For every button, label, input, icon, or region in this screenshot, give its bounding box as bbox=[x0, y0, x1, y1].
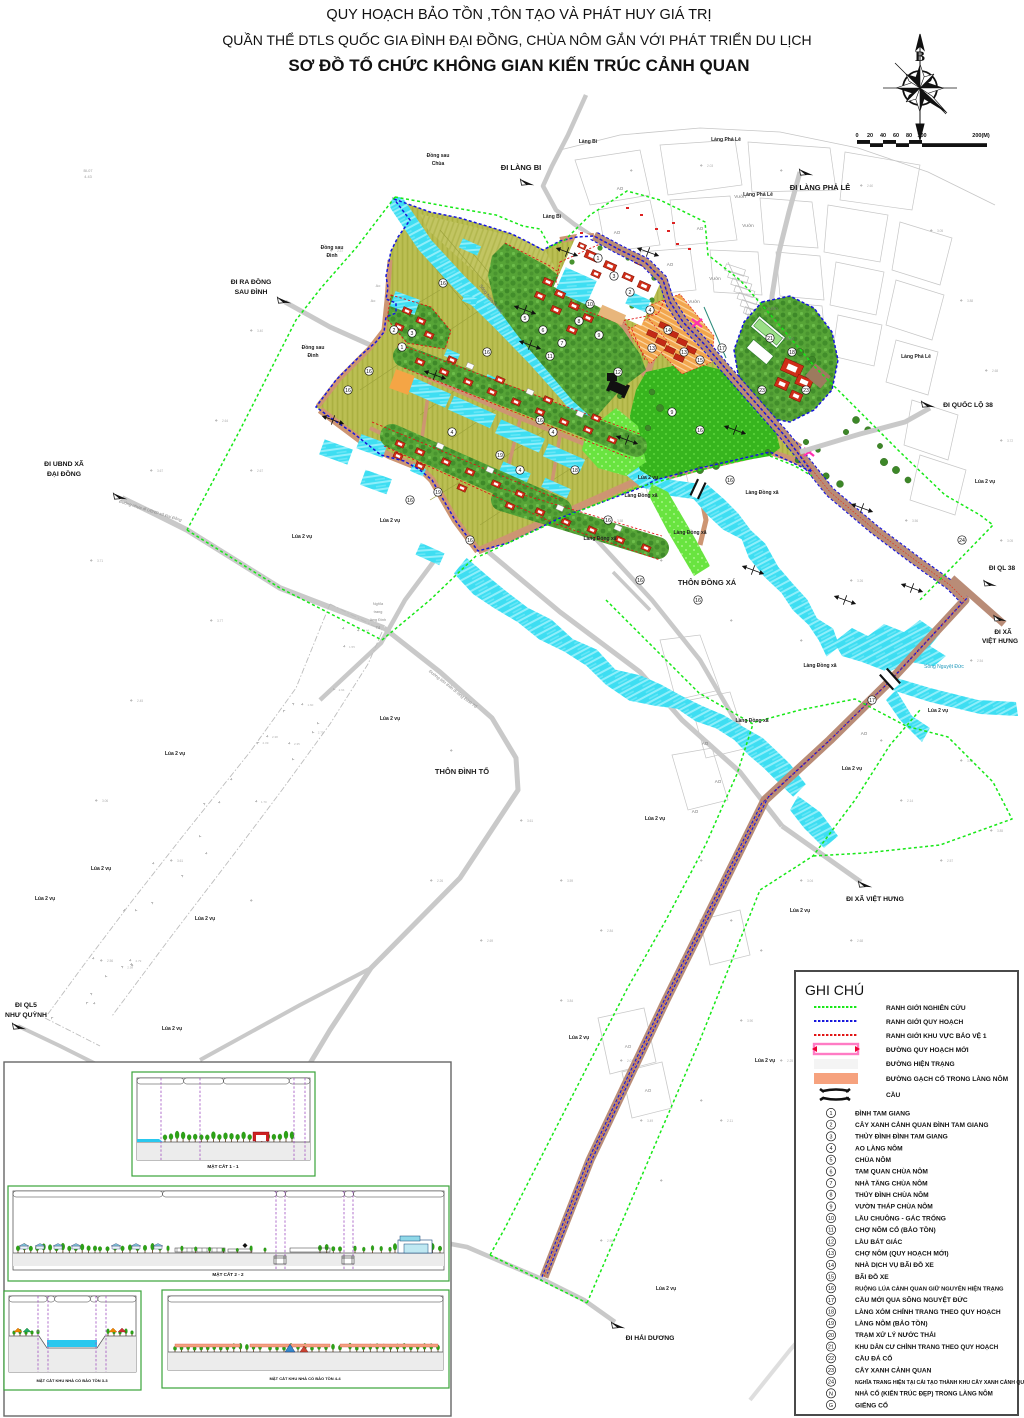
svg-text:0: 0 bbox=[855, 133, 858, 139]
svg-text:BÃI ĐỖ XE: BÃI ĐỖ XE bbox=[855, 1272, 889, 1281]
svg-text:16: 16 bbox=[697, 428, 703, 434]
svg-text:5: 5 bbox=[830, 1158, 833, 1164]
svg-text:1.60: 1.60 bbox=[307, 703, 313, 707]
svg-text:3: 3 bbox=[830, 1134, 833, 1140]
svg-text:Làng Đồng xã: Làng Đồng xã bbox=[673, 530, 706, 536]
svg-text:KHU DÂN CƯ CHỈNH TRANG THEO QU: KHU DÂN CƯ CHỈNH TRANG THEO QUY HOẠCH bbox=[855, 1344, 999, 1351]
svg-text:THỦY ĐÌNH ĐÌNH TAM GIANG: THỦY ĐÌNH ĐÌNH TAM GIANG bbox=[855, 1132, 948, 1141]
svg-text:2.56: 2.56 bbox=[107, 959, 113, 963]
svg-text:15: 15 bbox=[697, 358, 703, 364]
svg-text:Vườn: Vườn bbox=[688, 299, 700, 304]
svg-text:TRẠM XỬ LÝ NƯỚC THẢI: TRẠM XỬ LÝ NƯỚC THẢI bbox=[855, 1330, 936, 1339]
svg-text:2.58: 2.58 bbox=[127, 965, 133, 969]
svg-text:ĐI XÃ VIỆT HƯNG: ĐI XÃ VIỆT HƯNG bbox=[846, 894, 904, 903]
svg-text:2.45: 2.45 bbox=[137, 699, 143, 703]
svg-text:2.68: 2.68 bbox=[857, 939, 863, 943]
svg-text:4: 4 bbox=[830, 1146, 833, 1152]
svg-text:B: B bbox=[915, 49, 925, 65]
svg-text:16: 16 bbox=[828, 1286, 834, 1292]
svg-text:TAM QUAN CHÙA NÔM: TAM QUAN CHÙA NÔM bbox=[855, 1167, 928, 1176]
svg-text:ĐI QL 38: ĐI QL 38 bbox=[989, 565, 1016, 572]
svg-text:Làng Đồng xã: Làng Đồng xã bbox=[624, 493, 657, 499]
svg-text:2.39: 2.39 bbox=[263, 741, 269, 745]
svg-text:16: 16 bbox=[366, 369, 372, 375]
svg-text:Vườn: Vườn bbox=[734, 194, 746, 199]
svg-text:2.67: 2.67 bbox=[257, 469, 263, 473]
svg-text:NHÀ DỊCH VỤ BÃI ĐỖ XE: NHÀ DỊCH VỤ BÃI ĐỖ XE bbox=[855, 1260, 934, 1269]
svg-text:23: 23 bbox=[759, 388, 765, 394]
svg-text:trang: trang bbox=[374, 610, 383, 614]
svg-text:12: 12 bbox=[828, 1239, 834, 1245]
svg-text:2.14: 2.14 bbox=[907, 799, 913, 803]
svg-text:Lúa 2 vụ: Lúa 2 vụ bbox=[292, 534, 312, 540]
svg-text:2.38: 2.38 bbox=[272, 735, 278, 739]
svg-text:14: 14 bbox=[665, 328, 671, 334]
svg-text:Tổ: Tổ bbox=[376, 626, 380, 630]
svg-text:2.26: 2.26 bbox=[437, 879, 443, 883]
svg-text:2.79: 2.79 bbox=[135, 959, 141, 963]
svg-text:AO: AO bbox=[614, 230, 621, 235]
svg-text:NHÀ CỔ (KIẾN TRÚC ĐẸP) TRONG L: NHÀ CỔ (KIẾN TRÚC ĐẸP) TRONG LÀNG NÔM bbox=[855, 1390, 993, 1398]
svg-text:16: 16 bbox=[440, 281, 446, 287]
svg-text:LÀNG XÓM CHỈNH TRANG THEO QUY: LÀNG XÓM CHỈNH TRANG THEO QUY HOẠCH bbox=[855, 1307, 1001, 1316]
svg-text:VƯỜN THÁP CHÙA NÔM: VƯỜN THÁP CHÙA NÔM bbox=[855, 1202, 933, 1211]
svg-text:RANH GIỚI QUY HOẠCH: RANH GIỚI QUY HOẠCH bbox=[886, 1017, 964, 1026]
svg-text:3.06: 3.06 bbox=[102, 799, 108, 803]
svg-text:10: 10 bbox=[828, 1216, 834, 1222]
svg-text:3.85: 3.85 bbox=[997, 829, 1003, 833]
svg-text:20: 20 bbox=[867, 133, 873, 139]
svg-text:19: 19 bbox=[435, 490, 441, 496]
svg-text:7: 7 bbox=[830, 1181, 833, 1187]
svg-text:2: 2 bbox=[629, 290, 632, 296]
svg-text:22: 22 bbox=[828, 1356, 834, 1362]
svg-text:3.58: 3.58 bbox=[617, 519, 623, 523]
svg-text:2.68: 2.68 bbox=[992, 369, 998, 373]
svg-text:3: 3 bbox=[411, 331, 414, 337]
svg-text:AO: AO bbox=[625, 1044, 632, 1049]
svg-text:8: 8 bbox=[578, 319, 581, 325]
svg-text:1: 1 bbox=[830, 1111, 833, 1117]
svg-text:60: 60 bbox=[893, 133, 899, 139]
svg-text:16: 16 bbox=[605, 518, 611, 524]
svg-text:Vườn: Vườn bbox=[742, 223, 754, 228]
svg-text:ĐƯỜNG QUY HOẠCH MỚI: ĐƯỜNG QUY HOẠCH MỚI bbox=[886, 1045, 969, 1054]
svg-text:RUỘNG LÚA CẢNH QUAN GIỮ NGUYÊN: RUỘNG LÚA CẢNH QUAN GIỮ NGUYÊN HIỆN TRẠN… bbox=[855, 1285, 1004, 1293]
svg-text:ĐI LÀNG BI: ĐI LÀNG BI bbox=[501, 163, 541, 172]
svg-text:4: 4 bbox=[552, 430, 555, 436]
svg-text:CHỢ NÔM (QUY HOẠCH MỚI): CHỢ NÔM (QUY HOẠCH MỚI) bbox=[855, 1248, 949, 1257]
svg-text:Vườn: Vườn bbox=[782, 336, 794, 341]
svg-text:17: 17 bbox=[719, 346, 725, 352]
svg-text:2.84: 2.84 bbox=[607, 929, 613, 933]
svg-text:21: 21 bbox=[828, 1345, 834, 1351]
svg-text:3.84: 3.84 bbox=[567, 999, 573, 1003]
svg-text:ĐI UBND XÃ: ĐI UBND XÃ bbox=[44, 459, 84, 468]
svg-text:8: 8 bbox=[830, 1193, 833, 1199]
svg-text:1.55: 1.55 bbox=[349, 645, 355, 649]
svg-text:RANH GIỚI KHU VỰC BẢO VỆ 1: RANH GIỚI KHU VỰC BẢO VỆ 1 bbox=[886, 1031, 987, 1040]
svg-text:N: N bbox=[829, 1391, 833, 1397]
svg-text:Làng Bi: Làng Bi bbox=[543, 214, 562, 220]
svg-text:THỦY ĐÌNH CHÙA NÔM: THỦY ĐÌNH CHÙA NÔM bbox=[855, 1190, 929, 1199]
svg-text:ĐƯỜNG GẠCH CỔ TRONG LÀNG NÔM: ĐƯỜNG GẠCH CỔ TRONG LÀNG NÔM bbox=[886, 1074, 1009, 1083]
svg-text:MẶT CẮT KHU NHÀ CỔ BẢO TỒN 3-3: MẶT CẮT KHU NHÀ CỔ BẢO TỒN 3-3 bbox=[36, 1378, 108, 1383]
svg-text:MẶT CẮT KHU NHÀ CỔ BẢO TỒN 4-: MẶT CẮT KHU NHÀ CỔ BẢO TỒN 4-4 bbox=[269, 1376, 341, 1381]
svg-text:Đồng sau: Đồng sau bbox=[302, 345, 325, 351]
svg-text:16: 16 bbox=[727, 478, 733, 484]
svg-text:Lúa 2 vụ: Lúa 2 vụ bbox=[380, 716, 400, 722]
svg-text:Lúa 2 vụ: Lúa 2 vụ bbox=[755, 1058, 775, 1064]
svg-text:AO: AO bbox=[702, 741, 709, 746]
svg-text:5: 5 bbox=[524, 316, 527, 322]
svg-text:VIỆT HƯNG: VIỆT HƯNG bbox=[982, 636, 1018, 645]
svg-text:16: 16 bbox=[637, 578, 643, 584]
svg-text:Chùa: Chùa bbox=[432, 161, 445, 167]
svg-text:2: 2 bbox=[830, 1123, 833, 1129]
svg-text:16: 16 bbox=[537, 418, 543, 424]
svg-text:6: 6 bbox=[542, 328, 545, 334]
svg-text:15: 15 bbox=[828, 1274, 834, 1280]
svg-text:3.26: 3.26 bbox=[857, 579, 863, 583]
svg-text:7: 7 bbox=[561, 341, 564, 347]
svg-text:AO: AO bbox=[861, 731, 868, 736]
svg-text:2.35: 2.35 bbox=[294, 742, 300, 746]
svg-text:1: 1 bbox=[401, 345, 404, 351]
svg-text:Làng Đồng xã: Làng Đồng xã bbox=[803, 663, 836, 669]
svg-text:ĐI LÀNG PHẢ LÊ: ĐI LÀNG PHẢ LÊ bbox=[790, 183, 850, 192]
svg-text:BI-07: BI-07 bbox=[83, 169, 92, 173]
svg-text:17: 17 bbox=[869, 698, 875, 704]
svg-text:Lúa 2 vụ: Lúa 2 vụ bbox=[165, 751, 185, 757]
svg-text:3.49: 3.49 bbox=[647, 1119, 653, 1123]
svg-text:NHƯ QUỲNH: NHƯ QUỲNH bbox=[5, 1010, 47, 1019]
svg-text:MẶT CẮT 2 - 2: MẶT CẮT 2 - 2 bbox=[212, 1270, 244, 1277]
svg-text:9: 9 bbox=[830, 1204, 833, 1210]
svg-text:Lúa 2 vụ: Lúa 2 vụ bbox=[380, 518, 400, 524]
svg-text:Lúa 2 vụ: Lúa 2 vụ bbox=[656, 1286, 676, 1292]
svg-text:10: 10 bbox=[587, 302, 593, 308]
svg-text:THÔN ĐỒNG XÁ: THÔN ĐỒNG XÁ bbox=[678, 577, 737, 587]
svg-text:1.70: 1.70 bbox=[261, 800, 267, 804]
svg-text:Lúa 2 vụ: Lúa 2 vụ bbox=[569, 1035, 589, 1041]
svg-text:NGHĨA TRANG HIỆN TẠI CẢI TẠO T: NGHĨA TRANG HIỆN TẠI CẢI TẠO THÀNH KHU C… bbox=[855, 1378, 1024, 1386]
svg-text:3.88: 3.88 bbox=[967, 299, 973, 303]
svg-text:3.61: 3.61 bbox=[527, 819, 533, 823]
svg-text:ĐƯỜNG HIỆN TRẠNG: ĐƯỜNG HIỆN TRẠNG bbox=[886, 1059, 955, 1068]
svg-text:Vườn: Vườn bbox=[766, 306, 778, 311]
svg-text:2.54: 2.54 bbox=[977, 659, 983, 663]
svg-text:16: 16 bbox=[407, 498, 413, 504]
svg-text:13: 13 bbox=[828, 1251, 834, 1257]
svg-text:làng Đình: làng Đình bbox=[370, 618, 386, 622]
svg-text:16: 16 bbox=[695, 598, 701, 604]
svg-text:AO: AO bbox=[692, 809, 699, 814]
svg-text:Làng Phả Lê: Làng Phả Lê bbox=[711, 137, 741, 143]
svg-text:23: 23 bbox=[803, 388, 809, 394]
svg-text:16: 16 bbox=[484, 350, 490, 356]
svg-text:2.57: 2.57 bbox=[947, 859, 953, 863]
svg-text:2.03: 2.03 bbox=[707, 164, 713, 168]
svg-text:CHÙA NÔM: CHÙA NÔM bbox=[855, 1155, 892, 1164]
svg-text:40: 40 bbox=[880, 133, 886, 139]
svg-text:Làng Phả Lê: Làng Phả Lê bbox=[901, 354, 931, 360]
svg-text:Lúa 2 vụ: Lúa 2 vụ bbox=[162, 1026, 182, 1032]
svg-text:11: 11 bbox=[828, 1228, 834, 1234]
svg-text:18: 18 bbox=[789, 350, 795, 356]
svg-text:AO: AO bbox=[667, 262, 674, 267]
svg-text:SƠ ĐỒ TỔ CHỨC KHÔNG GIAN KIẾN: SƠ ĐỒ TỔ CHỨC KHÔNG GIAN KIẾN TRÚC CẢNH … bbox=[288, 56, 749, 75]
svg-text:14: 14 bbox=[828, 1263, 834, 1269]
svg-text:13: 13 bbox=[649, 346, 655, 352]
svg-text:13: 13 bbox=[681, 350, 687, 356]
svg-text:200(M): 200(M) bbox=[972, 133, 990, 139]
svg-text:AO: AO bbox=[715, 779, 722, 784]
svg-text:ĐI HẢI DƯƠNG: ĐI HẢI DƯƠNG bbox=[626, 1333, 675, 1342]
svg-text:3.59: 3.59 bbox=[567, 879, 573, 883]
svg-text:4.43: 4.43 bbox=[84, 175, 91, 179]
svg-text:16: 16 bbox=[467, 538, 473, 544]
svg-text:16: 16 bbox=[345, 388, 351, 394]
svg-text:100: 100 bbox=[917, 133, 926, 139]
svg-text:CÂY XANH CẢNH QUAN: CÂY XANH CẢNH QUAN bbox=[855, 1365, 932, 1374]
svg-text:24: 24 bbox=[828, 1380, 834, 1386]
svg-text:Lúa 2 vụ: Lúa 2 vụ bbox=[645, 816, 665, 822]
svg-text:ĐI QL5: ĐI QL5 bbox=[15, 1002, 37, 1009]
svg-text:QUY HOẠCH BẢO TỒN ,TÔN TẠO VÀ: QUY HOẠCH BẢO TỒN ,TÔN TẠO VÀ PHÁT HUY G… bbox=[326, 5, 711, 23]
svg-text:ĐÌNH TAM GIANG: ĐÌNH TAM GIANG bbox=[855, 1108, 910, 1117]
svg-text:AO: AO bbox=[697, 226, 704, 231]
svg-text:RANH GIỚI NGHIÊN CỨU: RANH GIỚI NGHIÊN CỨU bbox=[886, 1003, 966, 1012]
svg-text:Lúa 2 vụ: Lúa 2 vụ bbox=[842, 766, 862, 772]
svg-text:Làng Đồng xã: Làng Đồng xã bbox=[745, 490, 778, 496]
svg-text:Nghĩa: Nghĩa bbox=[373, 602, 384, 606]
svg-text:6: 6 bbox=[830, 1169, 833, 1175]
svg-text:NHÀ TĂNG CHÙA NÔM: NHÀ TĂNG CHÙA NÔM bbox=[855, 1178, 928, 1187]
svg-text:Làng Đồng xã: Làng Đồng xã bbox=[735, 718, 768, 724]
svg-text:G: G bbox=[829, 1403, 833, 1409]
svg-text:AO: AO bbox=[645, 1088, 652, 1093]
svg-text:3: 3 bbox=[613, 274, 616, 280]
svg-text:Lúa 2 vụ: Lúa 2 vụ bbox=[638, 475, 658, 481]
svg-text:Lúa 2 vụ: Lúa 2 vụ bbox=[35, 896, 55, 902]
svg-text:9: 9 bbox=[598, 333, 601, 339]
svg-text:2.69: 2.69 bbox=[487, 939, 493, 943]
svg-text:3.61: 3.61 bbox=[177, 859, 183, 863]
svg-text:Đồng sau: Đồng sau bbox=[427, 153, 450, 159]
svg-text:9: 9 bbox=[671, 410, 674, 416]
svg-text:2.25: 2.25 bbox=[787, 1059, 793, 1063]
svg-text:12: 12 bbox=[615, 370, 621, 376]
svg-text:2.75: 2.75 bbox=[318, 731, 324, 735]
svg-text:Ao: Ao bbox=[376, 284, 381, 288]
svg-text:4: 4 bbox=[649, 308, 652, 314]
svg-text:Làng Bi: Làng Bi bbox=[579, 139, 598, 145]
svg-text:11: 11 bbox=[547, 354, 552, 360]
svg-text:QUẦN THỂ DTLS QUỐC GIA ĐÌNH ĐẠ: QUẦN THỂ DTLS QUỐC GIA ĐÌNH ĐẠI ĐỒNG, CH… bbox=[222, 31, 811, 48]
svg-text:Sông Nguyệt Đức: Sông Nguyệt Đức bbox=[924, 664, 964, 670]
svg-text:Ao: Ao bbox=[371, 299, 376, 303]
svg-text:3.40: 3.40 bbox=[257, 329, 263, 333]
svg-text:ĐI XÃ: ĐI XÃ bbox=[994, 627, 1012, 636]
svg-text:AO LÀNG NÔM: AO LÀNG NÔM bbox=[855, 1143, 903, 1152]
svg-text:20: 20 bbox=[828, 1333, 834, 1339]
svg-text:THÔN ĐÌNH TỔ: THÔN ĐÌNH TỔ bbox=[435, 767, 489, 776]
svg-text:Đình: Đình bbox=[326, 253, 337, 259]
svg-text:Lúa 2 vụ: Lúa 2 vụ bbox=[790, 908, 810, 914]
svg-text:21: 21 bbox=[767, 336, 773, 342]
svg-text:2: 2 bbox=[393, 328, 396, 334]
svg-text:80: 80 bbox=[906, 133, 912, 139]
svg-text:1: 1 bbox=[597, 256, 600, 262]
svg-text:3.56: 3.56 bbox=[912, 519, 918, 523]
svg-text:Làng Đồng xã: Làng Đồng xã bbox=[583, 536, 616, 542]
svg-text:3.05: 3.05 bbox=[937, 229, 943, 233]
svg-text:18: 18 bbox=[572, 468, 578, 474]
svg-text:3.71: 3.71 bbox=[97, 559, 103, 563]
svg-text:19: 19 bbox=[828, 1321, 834, 1327]
svg-text:4: 4 bbox=[519, 468, 522, 474]
svg-text:2.60: 2.60 bbox=[867, 184, 873, 188]
svg-text:4: 4 bbox=[451, 430, 454, 436]
svg-text:2.11: 2.11 bbox=[727, 1119, 733, 1123]
svg-text:2.95: 2.95 bbox=[607, 1239, 613, 1243]
svg-text:Làng Phả Lê: Làng Phả Lê bbox=[743, 192, 773, 198]
svg-text:24: 24 bbox=[959, 538, 965, 544]
svg-text:19: 19 bbox=[497, 453, 503, 459]
svg-text:GHI CHÚ: GHI CHÚ bbox=[805, 982, 864, 998]
svg-text:Lúa 2 vụ: Lúa 2 vụ bbox=[928, 708, 948, 714]
svg-text:17: 17 bbox=[828, 1298, 834, 1304]
svg-text:2.64: 2.64 bbox=[222, 419, 228, 423]
svg-text:Lúa 2 vụ: Lúa 2 vụ bbox=[195, 916, 215, 922]
svg-text:AO: AO bbox=[617, 186, 624, 191]
svg-text:3.77: 3.77 bbox=[217, 619, 223, 623]
svg-text:CÂY XANH CẢNH QUAN ĐÌNH TAM GI: CÂY XANH CẢNH QUAN ĐÌNH TAM GIANG bbox=[855, 1120, 988, 1129]
svg-text:Vườn: Vườn bbox=[709, 276, 721, 281]
svg-text:23: 23 bbox=[828, 1368, 834, 1374]
svg-text:Đồng sau: Đồng sau bbox=[321, 245, 344, 251]
svg-text:3.67: 3.67 bbox=[157, 469, 163, 473]
svg-text:18: 18 bbox=[828, 1310, 834, 1316]
svg-text:MẶT CẮT 1 - 1: MẶT CẮT 1 - 1 bbox=[207, 1162, 239, 1169]
svg-text:Đình: Đình bbox=[307, 353, 318, 359]
svg-text:3.05: 3.05 bbox=[1007, 539, 1013, 543]
svg-text:2.94: 2.94 bbox=[339, 688, 345, 692]
svg-text:SAU ĐÌNH: SAU ĐÌNH bbox=[235, 287, 268, 296]
svg-text:Lúa 2 vụ: Lúa 2 vụ bbox=[91, 866, 111, 872]
svg-text:3.90: 3.90 bbox=[747, 1019, 753, 1023]
svg-text:3.04: 3.04 bbox=[807, 879, 813, 883]
svg-text:3.72: 3.72 bbox=[1007, 439, 1013, 443]
svg-text:Lúa 2 vụ: Lúa 2 vụ bbox=[975, 479, 995, 485]
